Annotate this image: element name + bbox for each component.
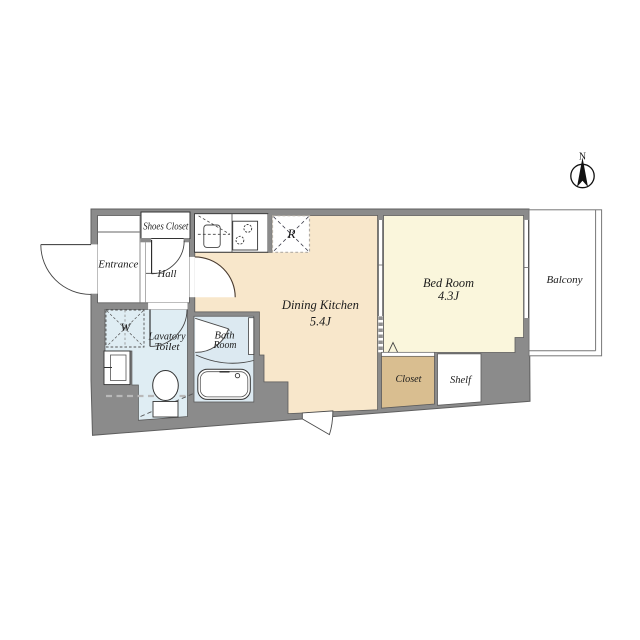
svg-text:N: N xyxy=(579,152,586,163)
svg-text:Balcony: Balcony xyxy=(547,274,583,286)
svg-text:W: W xyxy=(121,320,132,334)
svg-text:Shelf: Shelf xyxy=(450,375,473,386)
svg-text:Closet: Closet xyxy=(396,374,423,385)
svg-text:Entrance: Entrance xyxy=(97,258,138,270)
svg-text:Toilet: Toilet xyxy=(155,342,181,353)
svg-text:Room: Room xyxy=(213,340,237,351)
svg-text:R: R xyxy=(287,226,296,241)
svg-text:Lavatory: Lavatory xyxy=(148,332,186,343)
svg-text:5.4J: 5.4J xyxy=(310,314,332,329)
svg-text:Dining Kitchen: Dining Kitchen xyxy=(281,297,359,312)
svg-text:4.3J: 4.3J xyxy=(438,288,460,303)
svg-text:Shoes Closet: Shoes Closet xyxy=(143,222,188,233)
